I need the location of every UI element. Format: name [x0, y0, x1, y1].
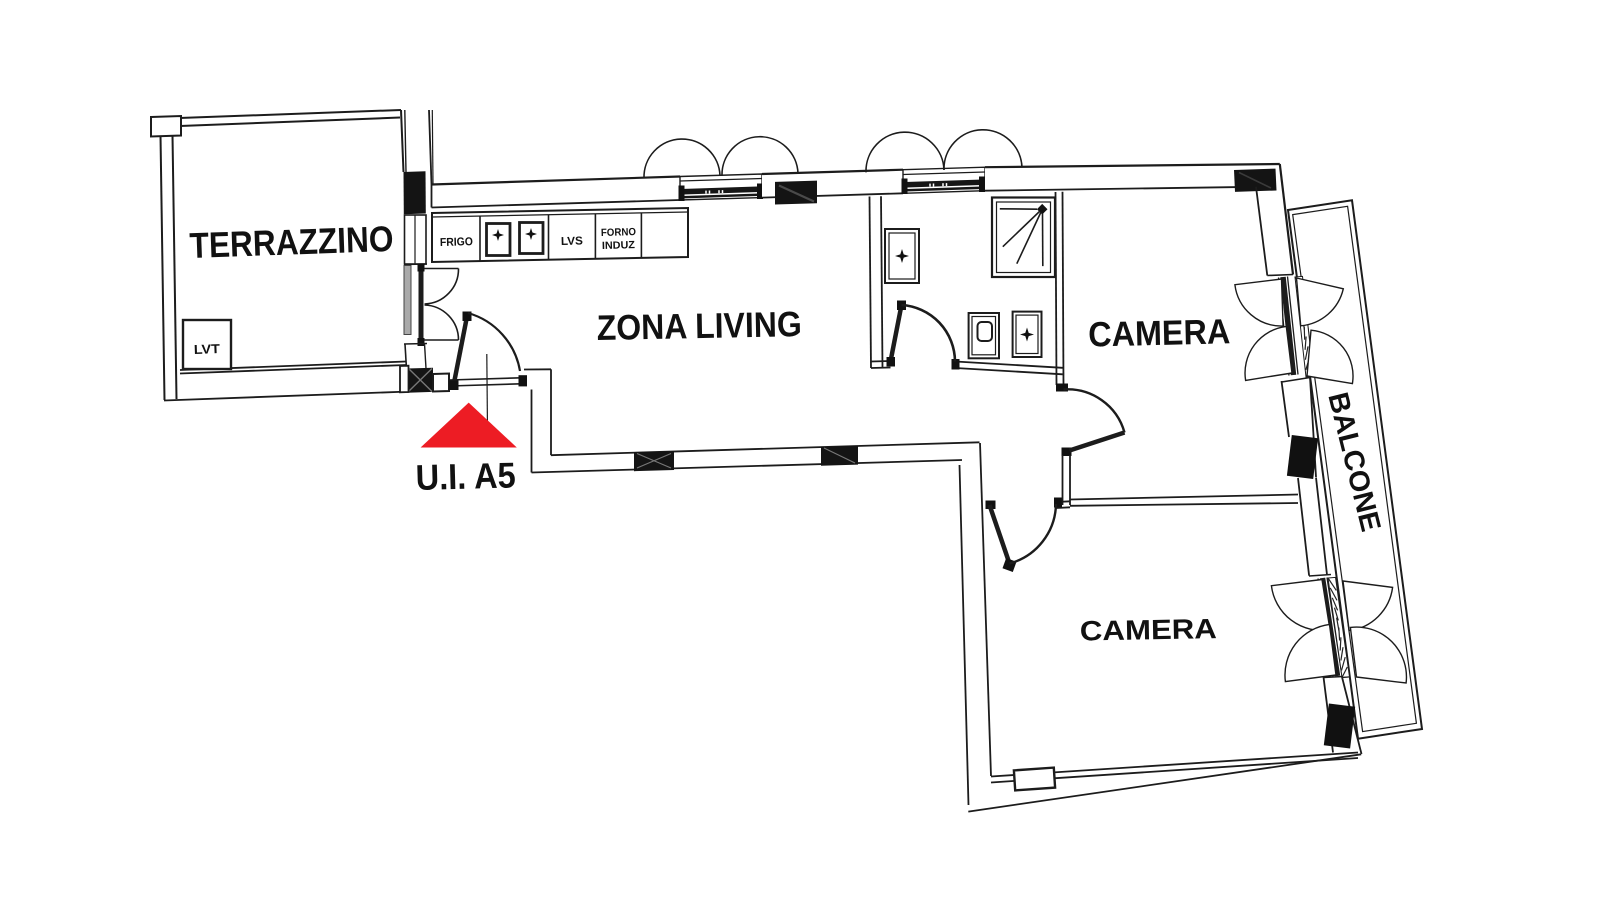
svg-text:CAMERA: CAMERA [1080, 613, 1218, 646]
svg-text:LVS: LVS [561, 235, 584, 248]
svg-text:FORNO: FORNO [601, 226, 636, 239]
svg-text:CAMERA: CAMERA [1088, 312, 1231, 354]
svg-text:ZONA LIVING: ZONA LIVING [596, 304, 802, 348]
svg-text:U.I. A5: U.I. A5 [415, 454, 516, 498]
svg-text:FRIGO: FRIGO [440, 236, 473, 249]
svg-text:LVT: LVT [194, 341, 221, 357]
svg-text:TERRAZZINO: TERRAZZINO [189, 218, 394, 266]
svg-text:INDUZ: INDUZ [602, 239, 636, 252]
